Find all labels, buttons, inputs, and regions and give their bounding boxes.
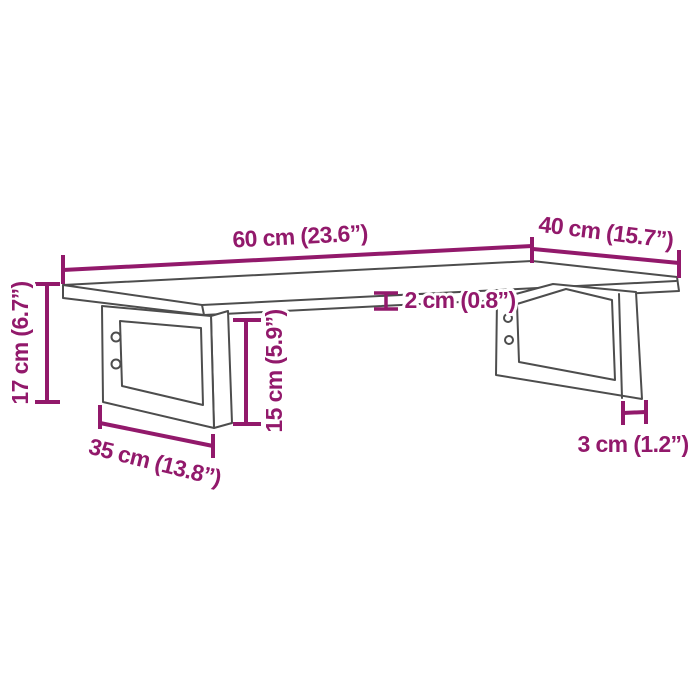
dim-overall-height-label: 17 cm (6.7”) xyxy=(7,281,33,404)
screw-hole xyxy=(505,336,513,344)
dim-bracket-height-label: 15 cm (5.9”) xyxy=(261,309,287,432)
dim-line xyxy=(623,412,646,413)
dim-overall-height: 17 cm (6.7”) xyxy=(7,281,60,404)
screw-hole xyxy=(112,333,121,342)
dim-bracket-bar-width-label: 3 cm (1.2”) xyxy=(577,431,688,457)
dim-bracket-bar-width: 3 cm (1.2”) xyxy=(577,400,688,457)
dim-bracket-height: 15 cm (5.9”) xyxy=(233,309,287,432)
dim-top-width-label: 60 cm (23.6”) xyxy=(232,219,369,252)
dim-top-depth-label: 40 cm (15.7”) xyxy=(537,211,675,253)
screw-hole xyxy=(112,360,121,369)
dim-top-thickness-label: 2 cm (0.8”) xyxy=(404,287,515,313)
right-bracket xyxy=(496,284,642,399)
product-dimension-diagram: 60 cm (23.6”) 40 cm (15.7”) 2 cm (0.8”) … xyxy=(0,0,700,700)
left-bracket xyxy=(102,306,232,428)
diagram-svg: 60 cm (23.6”) 40 cm (15.7”) 2 cm (0.8”) … xyxy=(0,0,700,700)
screw-hole xyxy=(504,314,512,322)
dim-bracket-depth-label: 35 cm (13.8”) xyxy=(86,433,224,491)
